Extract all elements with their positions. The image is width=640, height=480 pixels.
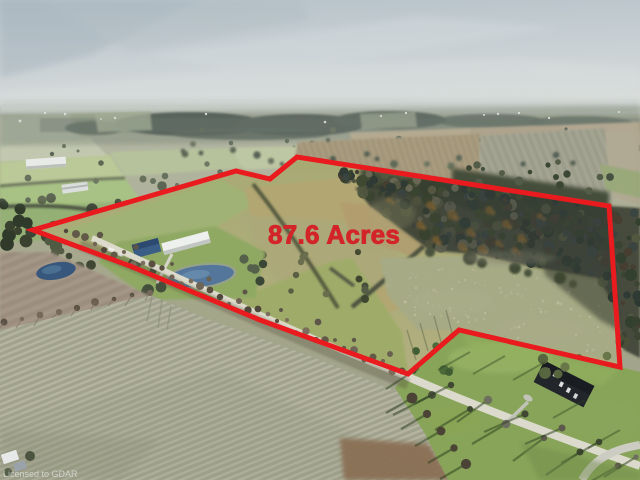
svg-text:87.6 Acres: 87.6 Acres [268,220,400,250]
svg-text:Licensed to GDAR: Licensed to GDAR [3,469,78,479]
